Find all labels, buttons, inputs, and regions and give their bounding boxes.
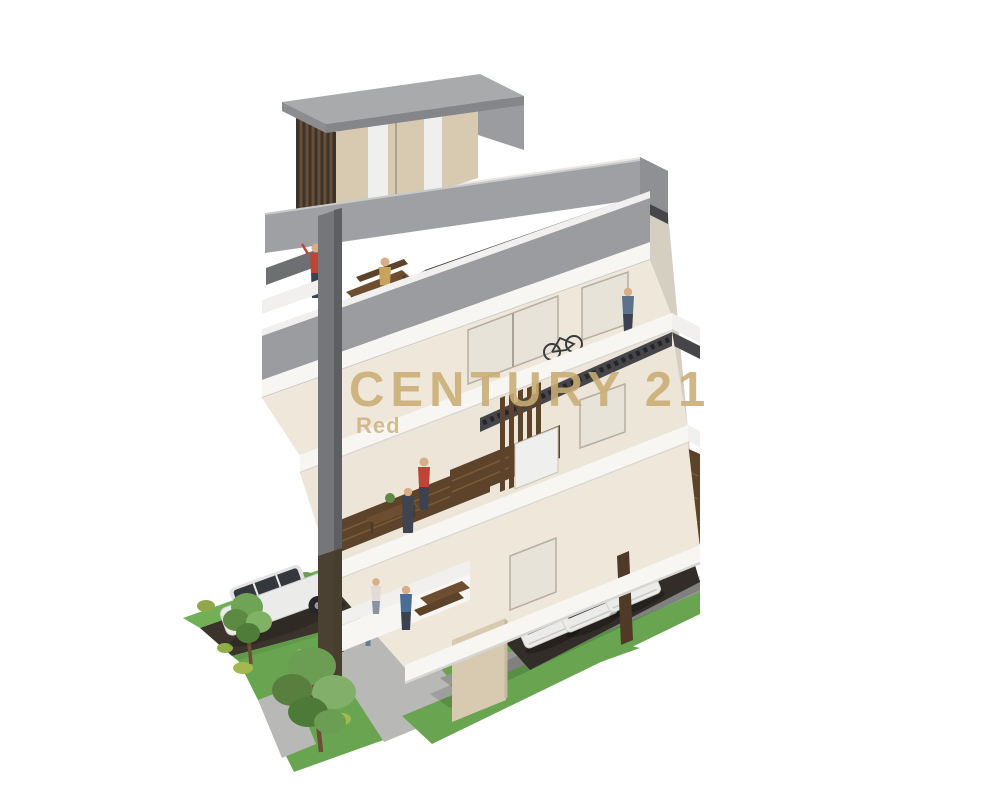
shrub (197, 600, 215, 612)
slab-wrap (688, 425, 700, 447)
rendering-canvas: CENTURY 21 Red (0, 0, 1000, 801)
table-plant (385, 493, 395, 503)
building-render (0, 0, 1000, 801)
section-cut-column (318, 208, 342, 694)
